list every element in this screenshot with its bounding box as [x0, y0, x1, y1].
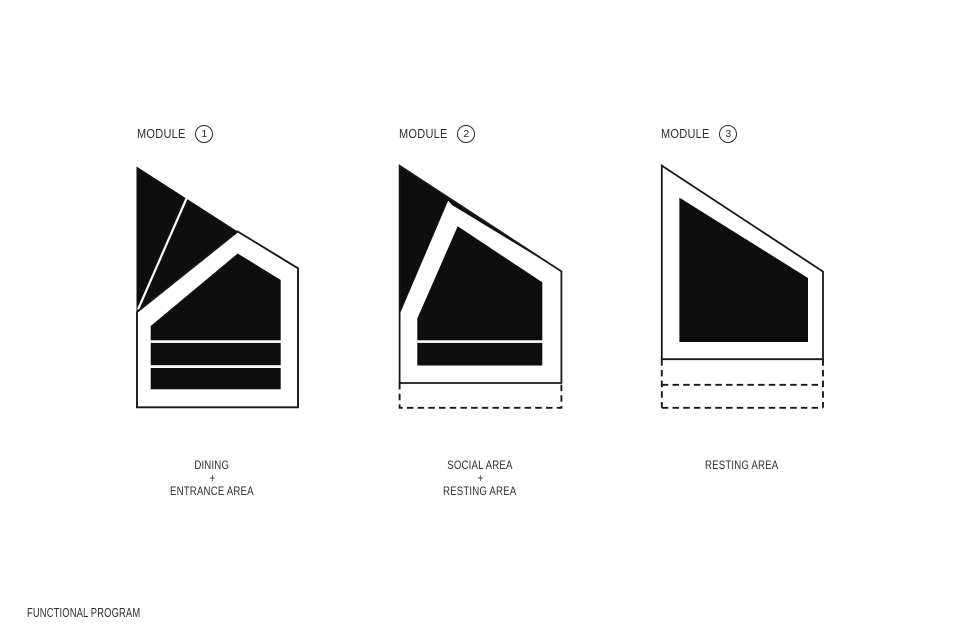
module-2-number-badge: 2 [457, 125, 475, 143]
module-2-floor-line [417, 340, 543, 343]
module-1-shape [137, 167, 299, 408]
module-2-label: MODULE 2 [399, 124, 475, 144]
area-line: SOCIAL AREA [447, 460, 512, 473]
area-line-plus: + [477, 473, 483, 486]
area-line-plus: + [209, 473, 215, 486]
functional-program-diagram: MODULE 1 MODULE 2 MODULE 3 DINING + ENTR… [0, 0, 960, 639]
module-2-shape [400, 166, 562, 408]
module-2-area-label: SOCIAL AREA + RESTING AREA [370, 460, 590, 499]
module-3-shape [662, 166, 823, 408]
diagram-title: FUNCTIONAL PROGRAM [27, 606, 140, 620]
module-3-label: MODULE 3 [661, 124, 737, 144]
area-line: RESTING AREA [705, 460, 778, 473]
module-2-dashed-extension [400, 383, 562, 408]
module-2-label-text: MODULE [399, 127, 448, 141]
module-1-floor-line-lower [150, 365, 281, 368]
area-line: RESTING AREA [443, 486, 516, 499]
module-1-label-text: MODULE [137, 127, 186, 141]
area-line: ENTRANCE AREA [170, 486, 254, 499]
module-1-number-badge: 1 [195, 125, 213, 143]
module-1-area-label: DINING + ENTRANCE AREA [102, 460, 322, 499]
module-1-floor-line-upper [150, 340, 281, 343]
module-3-label-text: MODULE [661, 127, 710, 141]
module-3-number-badge: 3 [719, 125, 737, 143]
module-3-area-label: RESTING AREA [632, 460, 852, 473]
module-1-label: MODULE 1 [137, 124, 213, 144]
module-shapes-canvas [0, 0, 960, 639]
area-line: DINING [195, 460, 230, 473]
